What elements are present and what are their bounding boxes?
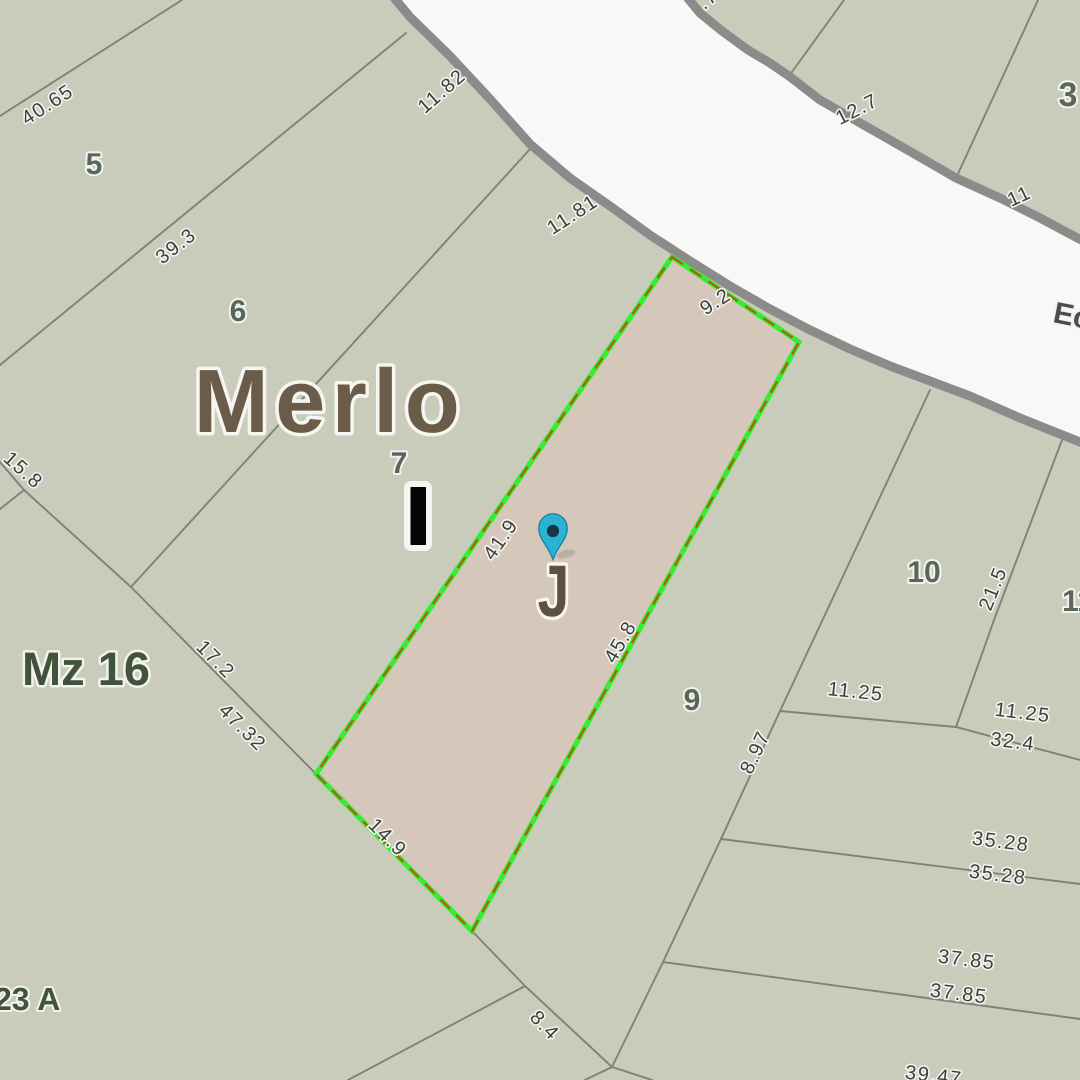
svg-text:11: 11 <box>1062 585 1080 618</box>
svg-text:Merlo: Merlo <box>194 352 467 452</box>
svg-text:5: 5 <box>86 148 103 181</box>
svg-text:3: 3 <box>1059 76 1078 114</box>
svg-text:Mz 16: Mz 16 <box>22 642 150 695</box>
svg-text:J: J <box>538 551 570 632</box>
svg-text:6: 6 <box>230 295 247 328</box>
svg-text:9: 9 <box>684 684 701 717</box>
svg-text:23 A: 23 A <box>0 981 60 1017</box>
svg-text:10: 10 <box>907 556 940 589</box>
